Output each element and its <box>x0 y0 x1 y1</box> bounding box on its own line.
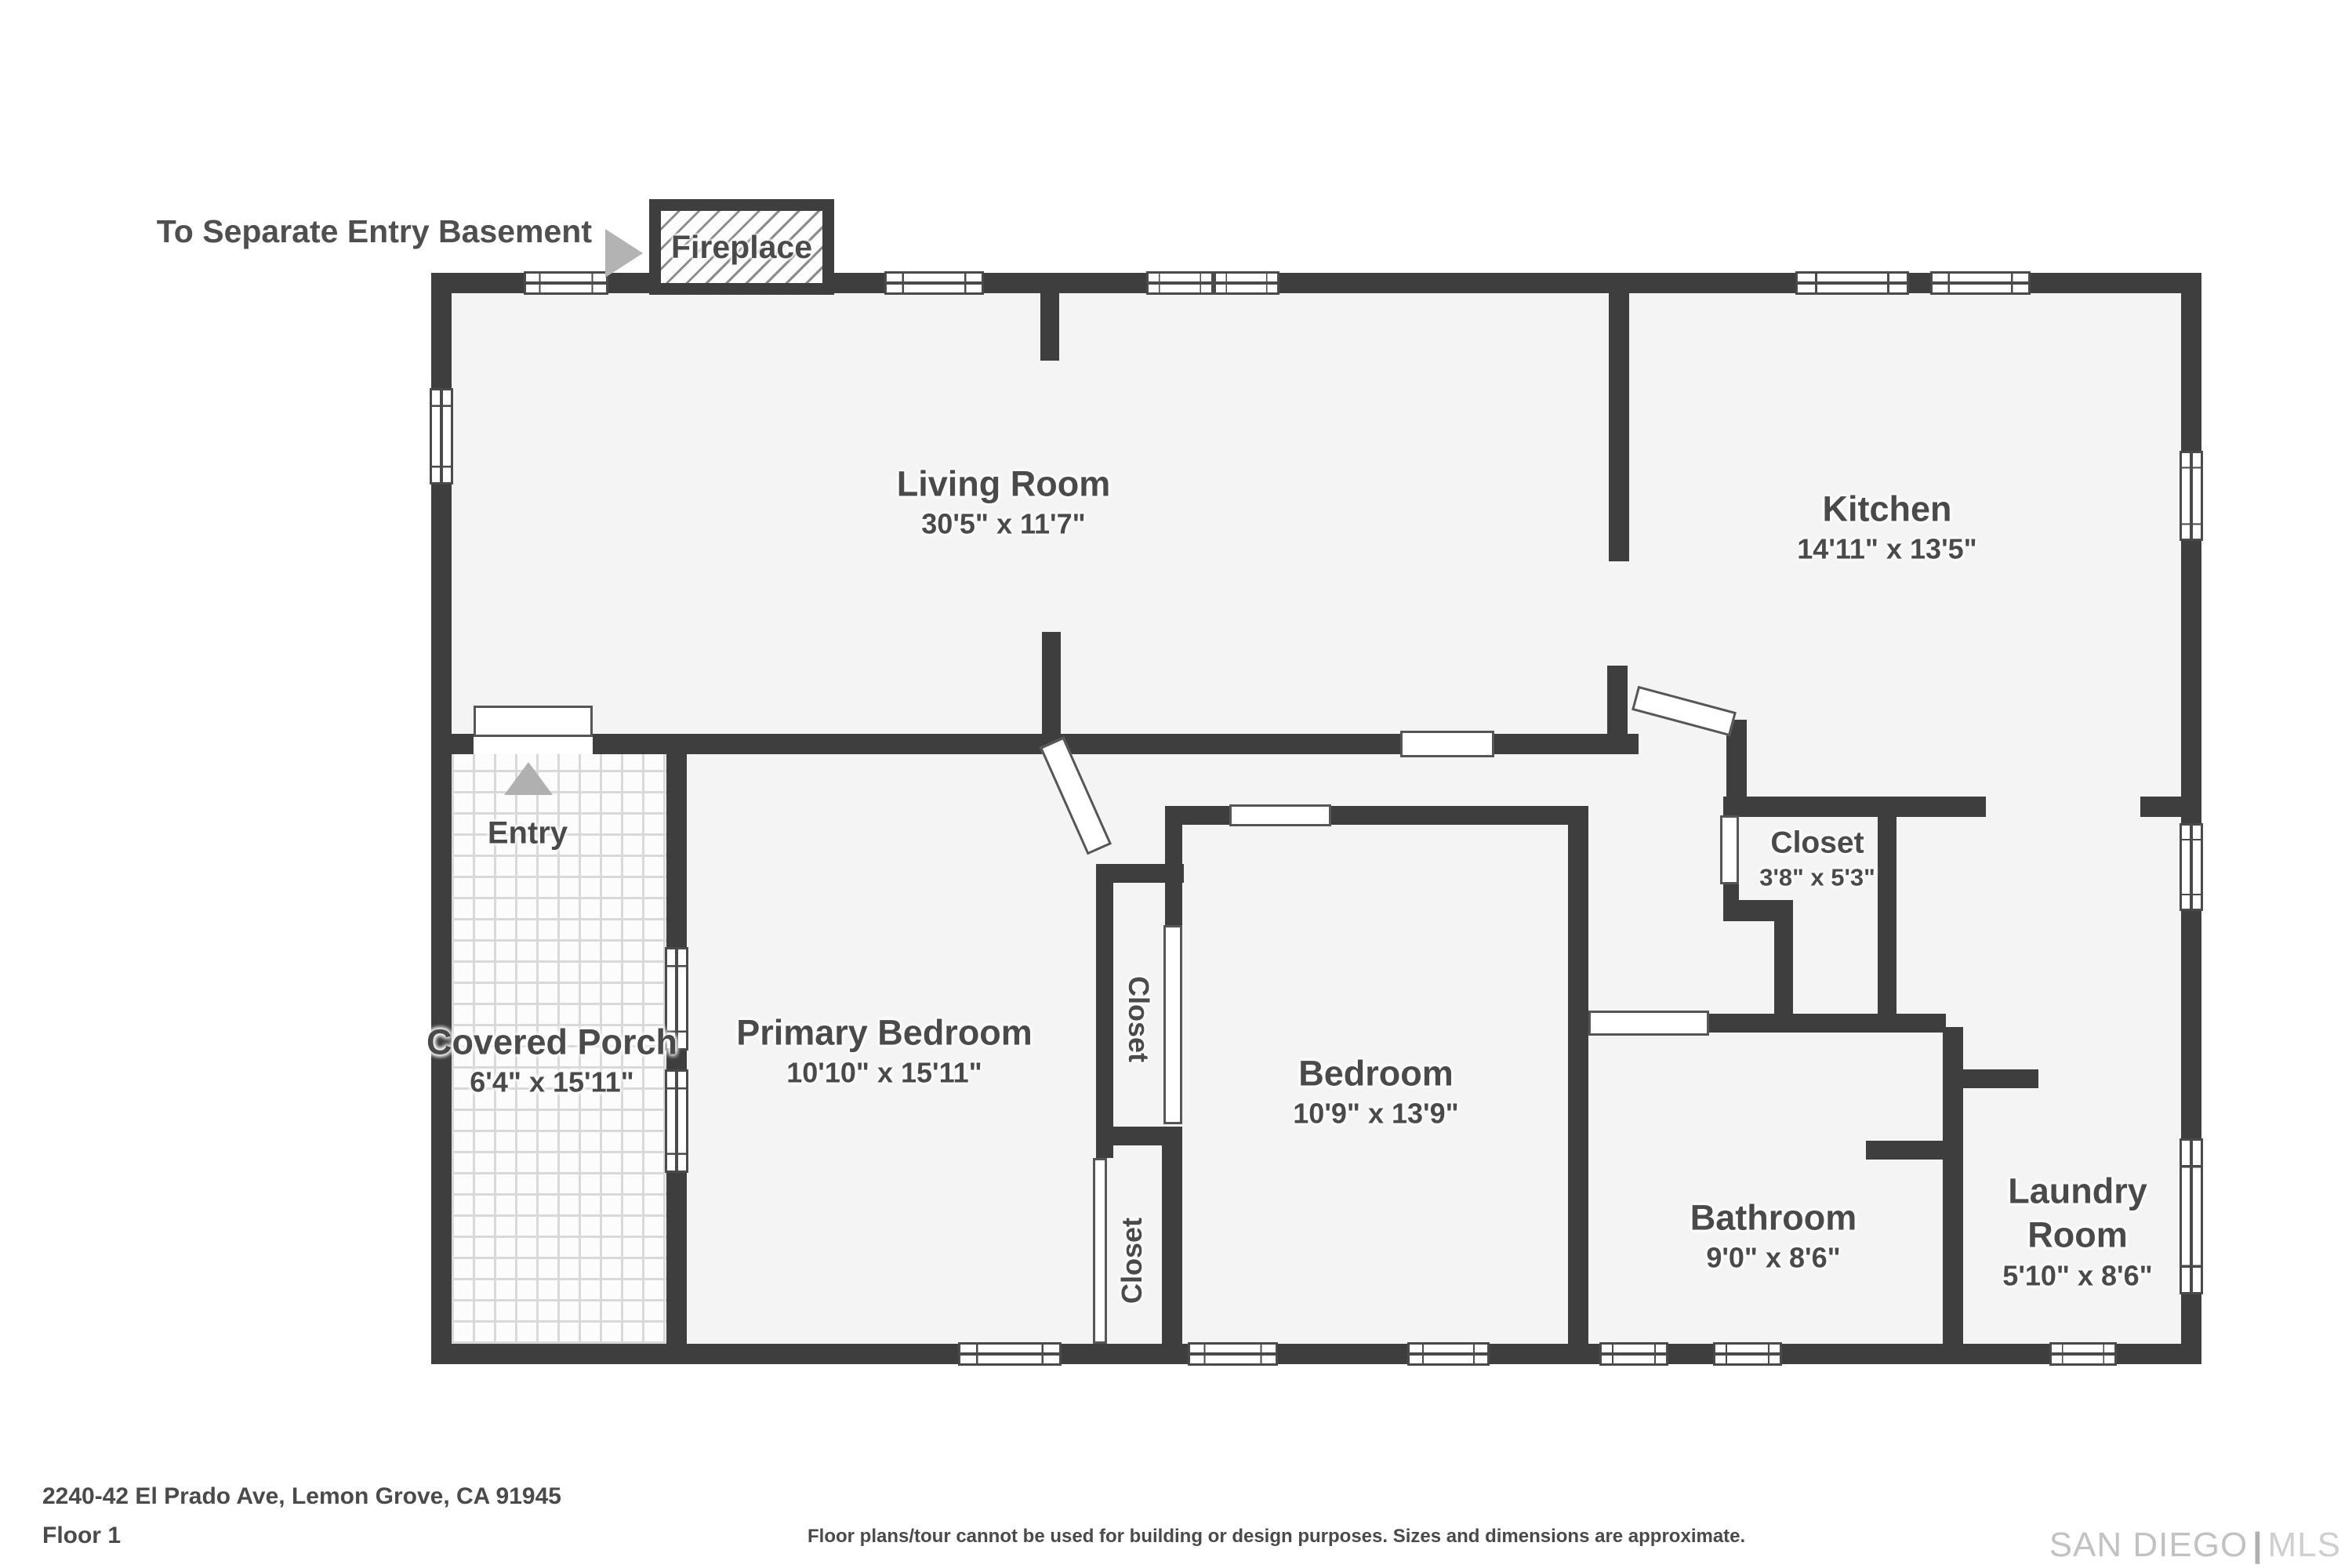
fireplace-label: Fireplace <box>671 229 812 266</box>
right-arrow-icon <box>605 229 643 278</box>
disclaimer-text: Floor plans/tour cannot be used for buil… <box>808 1526 1745 1548</box>
sandiego-mls-logo: SAN DIEGO|MLS <box>2049 1526 2341 1565</box>
window <box>524 271 608 295</box>
wall <box>1096 864 1184 883</box>
wall <box>1042 632 1061 734</box>
window <box>1713 1342 1782 1366</box>
basement-note: To Separate Entry Basement <box>122 213 592 250</box>
fireplace: Fireplace <box>649 199 834 295</box>
room-label-laundry-room: Laundry Room 5'10" x 8'6" <box>1968 1169 2187 1293</box>
window <box>2049 1342 2117 1366</box>
entry-arrow-icon <box>504 762 553 795</box>
window <box>1599 1342 1668 1366</box>
wall <box>1331 806 1588 825</box>
wall <box>1165 806 1229 825</box>
wall <box>1723 797 1986 817</box>
hall-closet-door <box>1720 815 1739 884</box>
wall <box>1568 806 1588 1344</box>
room-label-closet-hall: Closet 3'8" x 5'3" <box>1759 824 1875 893</box>
wall <box>1709 1014 1946 1033</box>
wall <box>1774 921 1793 1015</box>
window <box>884 271 984 295</box>
room-label-bathroom: Bathroom 9'0" x 8'6" <box>1690 1196 1857 1275</box>
floor-plan: To Separate Entry Basement Fireplace Ent… <box>0 0 2352 1568</box>
front-door-leaf <box>474 706 593 737</box>
window <box>1146 271 1214 295</box>
hall-opening <box>1400 731 1494 757</box>
room-label-covered-porch: Covered Porch 6'4" x 15'11" <box>426 1020 677 1099</box>
wall <box>1963 1069 2038 1088</box>
window <box>958 1342 1062 1366</box>
address-text: 2240-42 El Prado Ave, Lemon Grove, CA 91… <box>42 1483 561 1510</box>
window <box>1407 1342 1490 1366</box>
wall <box>1723 900 1793 921</box>
window <box>2180 823 2203 911</box>
wall <box>1162 1145 1182 1344</box>
wall <box>1609 293 1629 561</box>
wall <box>1096 1145 1113 1158</box>
upper-closet-label: Closet <box>1107 960 1170 1078</box>
wall <box>1878 817 1896 1015</box>
window <box>1930 271 2031 295</box>
wall <box>1607 666 1628 734</box>
window <box>1795 271 1909 295</box>
room-label-living-room: Living Room 30'5" x 11'7" <box>897 462 1110 541</box>
wall <box>1943 1027 1963 1344</box>
logo-primary: SAN DIEGO <box>2049 1526 2249 1565</box>
bedroom-opening <box>1229 804 1331 826</box>
logo-divider: | <box>2252 1526 2263 1565</box>
wall <box>2140 797 2181 817</box>
room-label-bedroom: Bedroom 10'9" x 13'9" <box>1293 1051 1458 1131</box>
wall <box>1866 1141 1943 1160</box>
wall <box>1040 293 1059 361</box>
bathroom-door-opening <box>1588 1011 1709 1036</box>
room-label-primary-bedroom: Primary Bedroom 10'10" x 15'11" <box>736 1011 1033 1090</box>
logo-secondary: MLS <box>2268 1526 2341 1565</box>
room-label-kitchen: Kitchen 14'11" x 13'5" <box>1797 487 1976 566</box>
entry-label: Entry <box>488 816 568 851</box>
window <box>1214 271 1279 295</box>
floor-number: Floor 1 <box>42 1523 121 1549</box>
window <box>2180 451 2203 541</box>
wall <box>431 1344 2201 1364</box>
window <box>430 388 453 485</box>
wall <box>1096 1127 1182 1145</box>
lower-closet-label: Closet <box>1101 1196 1163 1325</box>
window <box>1188 1342 1278 1366</box>
